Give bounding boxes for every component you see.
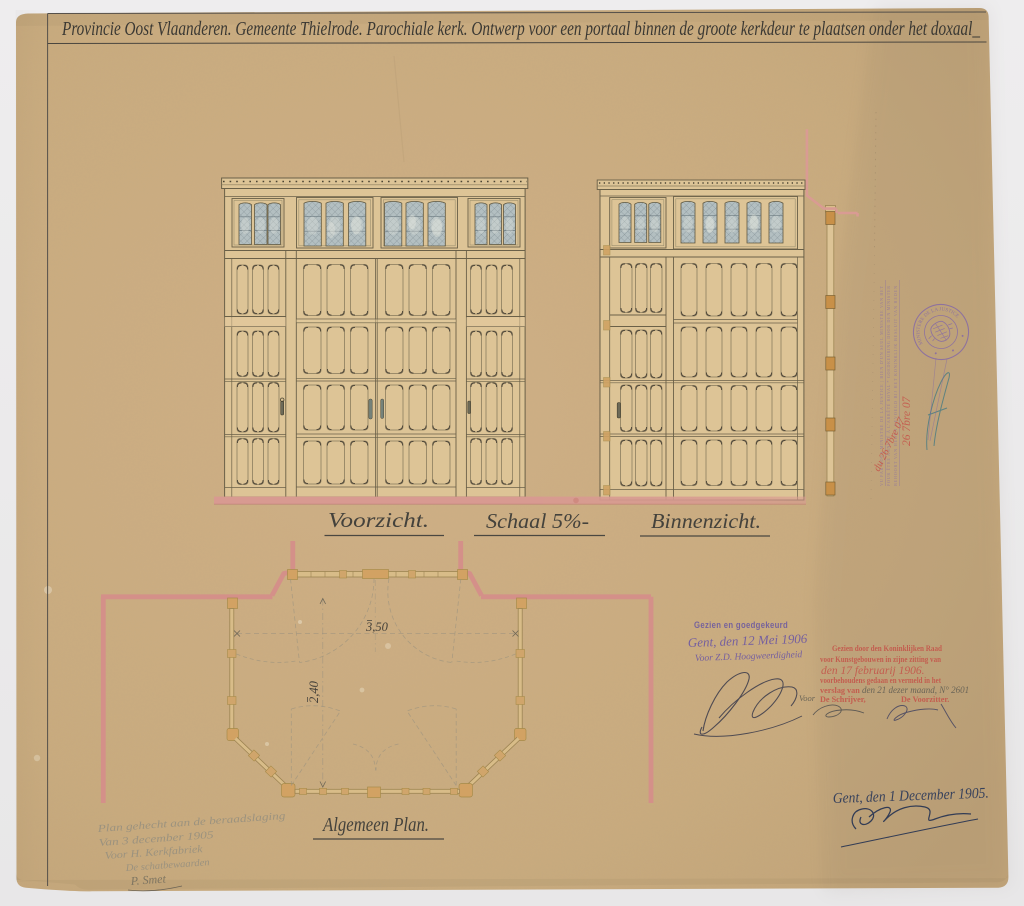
svg-text:De Voorzitter.: De Voorzitter. [901, 695, 949, 704]
svg-text:De Schrijver,: De Schrijver, [820, 695, 866, 704]
svg-text:Voorzicht.: Voorzicht. [328, 508, 429, 532]
svg-text:Gezien door den Koninklijken R: Gezien door den Koninklijken Raad [832, 644, 942, 653]
svg-text:2,40: 2,40 [307, 680, 321, 703]
svg-text:Provincie Oost Vlaanderen. Gem: Provincie Oost Vlaanderen. Gemeente Thie… [61, 18, 981, 40]
svg-text:3,50: 3,50 [365, 620, 389, 634]
svg-text:Algemeen Plan.: Algemeen Plan. [321, 814, 429, 836]
svg-text:P. Smet: P. Smet [129, 872, 167, 889]
svg-text:Gezien en goedgekeurd: Gezien en goedgekeurd [694, 620, 788, 631]
svg-text:voor Kunstgebouwen in zijne zi: voor Kunstgebouwen in zijne zitting van [820, 655, 941, 664]
svg-text:voorbehoudens gedaan en vermel: voorbehoudens gedaan en vermeld in het [820, 676, 941, 685]
svg-text:verslag van: verslag van [820, 686, 860, 695]
svg-text:Binnenzicht.: Binnenzicht. [651, 509, 761, 533]
svg-text:Schaal 5%-: Schaal 5%- [486, 509, 589, 533]
svg-text:den 21 dezer maand, N° 2601: den 21 dezer maand, N° 2601 [862, 685, 969, 695]
svg-text:BEHOORT VAN HEDEN GEVOEGD BIJ: BEHOORT VAN HEDEN GEVOEGD BIJ HET KONINK… [893, 286, 898, 486]
svg-text:Voor: Voor [799, 693, 816, 703]
